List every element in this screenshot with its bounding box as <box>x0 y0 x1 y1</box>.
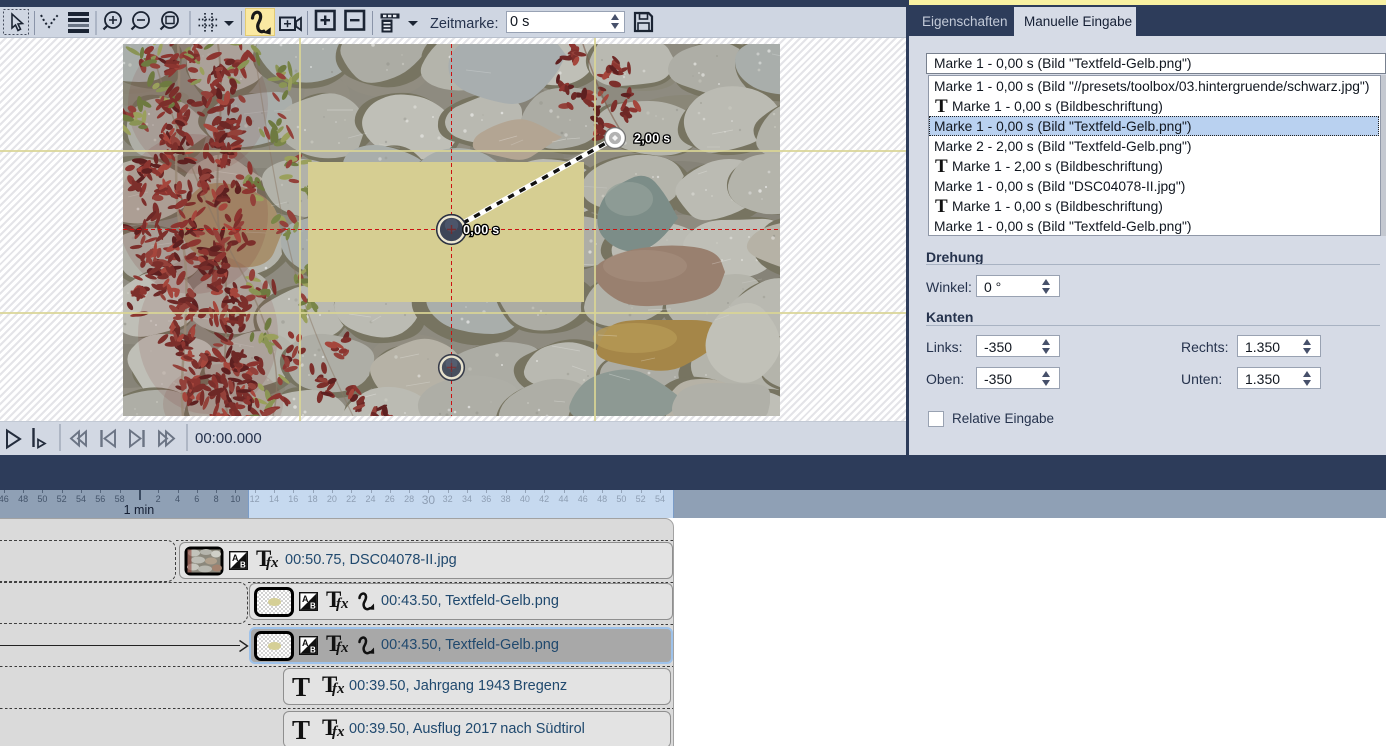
svg-text:0,00 s: 0,00 s <box>463 223 500 237</box>
svg-text:2,00 s: 2,00 s <box>634 132 671 146</box>
svg-text:A: A <box>302 638 309 648</box>
svg-text:B: B <box>310 646 316 655</box>
svg-text:A: A <box>232 553 239 563</box>
svg-text:B: B <box>240 561 246 570</box>
svg-text:A: A <box>302 594 309 604</box>
svg-text:B: B <box>310 602 316 611</box>
